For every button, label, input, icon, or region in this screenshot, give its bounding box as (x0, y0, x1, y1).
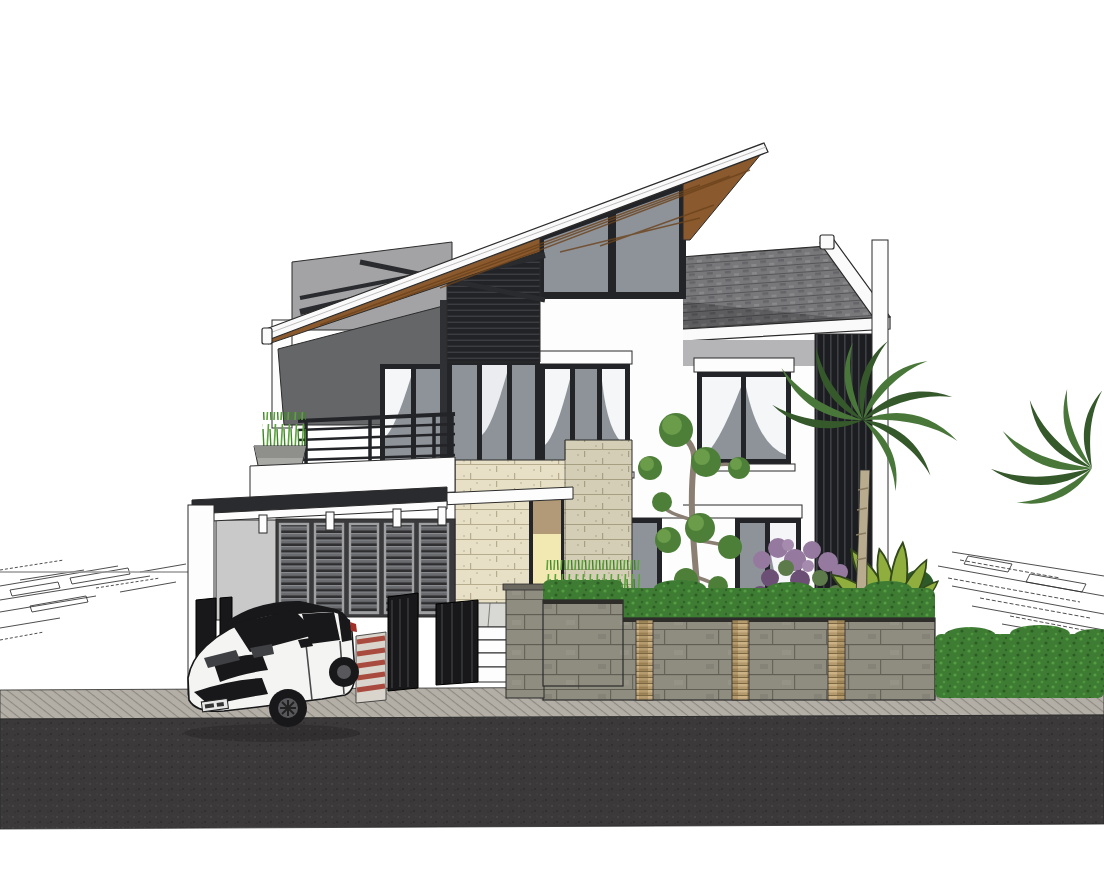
render-scene (0, 0, 1104, 878)
stacked-stone-strip (732, 620, 749, 700)
glazing-band (447, 360, 540, 472)
stacked-stone-strip (636, 620, 653, 700)
architectural-render-canvas (0, 0, 1104, 878)
hedge-right (935, 625, 1104, 698)
car-shadow (184, 724, 360, 742)
gate-pillar (503, 584, 547, 698)
stacked-stone-strip (828, 620, 845, 700)
road (0, 715, 1104, 829)
entry-planter (543, 580, 623, 686)
ramp (356, 632, 386, 703)
